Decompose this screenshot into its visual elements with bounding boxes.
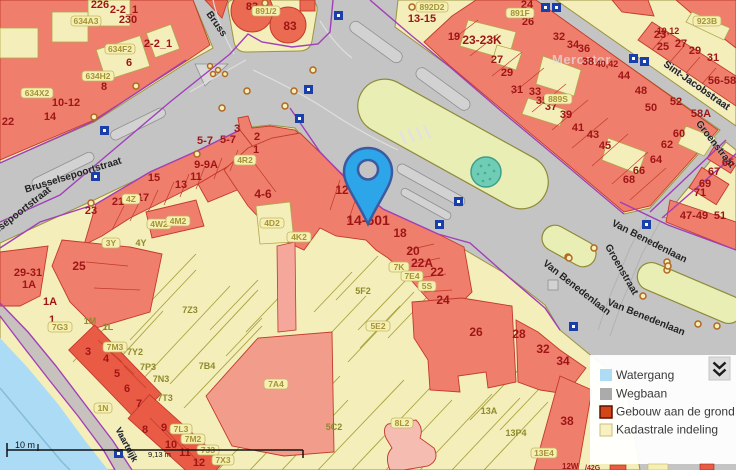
svg-text:7L3: 7L3 xyxy=(174,424,189,434)
svg-text:Watergang: Watergang xyxy=(616,368,674,382)
svg-text:892D2: 892D2 xyxy=(419,2,444,12)
svg-text:4K2: 4K2 xyxy=(291,232,307,242)
svg-text:4-6: 4-6 xyxy=(254,187,272,201)
svg-text:230: 230 xyxy=(119,14,137,26)
svg-text:7T3: 7T3 xyxy=(157,393,173,403)
svg-text:31: 31 xyxy=(511,84,523,96)
svg-text:14: 14 xyxy=(44,111,57,123)
svg-text:32: 32 xyxy=(536,342,550,356)
svg-text:8L2: 8L2 xyxy=(395,418,410,428)
svg-text:26: 26 xyxy=(469,325,483,339)
svg-text:47-49: 47-49 xyxy=(680,210,708,222)
svg-text:29: 29 xyxy=(501,67,513,79)
svg-text:6: 6 xyxy=(126,57,132,69)
svg-text:Kadastrale indeling: Kadastrale indeling xyxy=(616,423,718,437)
svg-text:29: 29 xyxy=(689,45,701,57)
svg-text:2: 2 xyxy=(254,131,260,143)
svg-text:43: 43 xyxy=(587,129,599,141)
svg-text:67: 67 xyxy=(708,166,720,178)
svg-text:65: 65 xyxy=(722,157,734,169)
svg-text:5C2: 5C2 xyxy=(326,422,343,432)
svg-text:83: 83 xyxy=(283,19,297,33)
svg-text:Wegbaan: Wegbaan xyxy=(616,387,667,401)
svg-text:891F: 891F xyxy=(510,8,529,18)
svg-text:38: 38 xyxy=(582,56,594,68)
svg-text:226: 226 xyxy=(91,0,109,11)
svg-text:1A: 1A xyxy=(22,279,36,291)
svg-text:7N3: 7N3 xyxy=(153,374,170,384)
svg-text:24: 24 xyxy=(436,293,450,307)
svg-text:60: 60 xyxy=(673,128,685,140)
svg-text:1N: 1N xyxy=(98,403,109,413)
svg-text:Gebouw aan de grond: Gebouw aan de grond xyxy=(616,405,735,419)
svg-text:68: 68 xyxy=(623,174,635,186)
svg-text:25: 25 xyxy=(657,41,669,53)
svg-text:44: 44 xyxy=(618,70,631,82)
svg-text:5: 5 xyxy=(114,368,120,380)
svg-text:52: 52 xyxy=(670,96,682,108)
svg-text:27: 27 xyxy=(675,38,687,50)
svg-text:23-23K: 23-23K xyxy=(462,33,502,47)
svg-text:19: 19 xyxy=(448,31,460,43)
svg-text:889S: 889S xyxy=(548,94,568,104)
svg-text:/42G: /42G xyxy=(585,465,601,470)
svg-text:1L: 1L xyxy=(103,322,114,332)
svg-text:29-31: 29-31 xyxy=(14,267,42,279)
svg-text:9-9A: 9-9A xyxy=(194,159,218,171)
svg-text:11: 11 xyxy=(179,447,191,459)
svg-text:7A4: 7A4 xyxy=(268,379,284,389)
svg-text:64: 64 xyxy=(650,154,663,166)
svg-text:10,12: 10,12 xyxy=(657,26,680,36)
svg-text:7X3: 7X3 xyxy=(215,455,230,465)
svg-text:4M2: 4M2 xyxy=(170,216,187,226)
svg-text:5S: 5S xyxy=(422,281,433,291)
svg-text:48: 48 xyxy=(635,85,647,97)
svg-text:7E4: 7E4 xyxy=(404,271,419,281)
svg-text:4D2: 4D2 xyxy=(264,218,280,228)
svg-text:634A3: 634A3 xyxy=(73,16,98,26)
svg-text:923B: 923B xyxy=(697,16,717,26)
svg-text:891/2: 891/2 xyxy=(255,6,277,16)
svg-text:13E4: 13E4 xyxy=(534,448,554,458)
svg-text:15: 15 xyxy=(148,172,160,184)
svg-text:7Y2: 7Y2 xyxy=(127,347,143,357)
svg-text:23: 23 xyxy=(85,205,97,217)
svg-text:4W2: 4W2 xyxy=(150,219,168,229)
svg-text:41: 41 xyxy=(572,122,584,134)
svg-text:34: 34 xyxy=(556,354,570,368)
svg-text:13-15: 13-15 xyxy=(408,13,436,25)
svg-text:32: 32 xyxy=(553,31,565,43)
svg-text:31: 31 xyxy=(707,52,719,64)
svg-text:1: 1 xyxy=(253,144,259,156)
svg-text:4Y: 4Y xyxy=(135,238,146,248)
svg-text:36: 36 xyxy=(578,43,590,55)
svg-text:39: 39 xyxy=(560,109,572,121)
svg-text:1M: 1M xyxy=(84,316,97,326)
svg-text:13: 13 xyxy=(175,179,187,191)
svg-text:13A: 13A xyxy=(481,406,498,416)
svg-text:12: 12 xyxy=(193,457,205,469)
svg-text:7: 7 xyxy=(136,398,142,410)
svg-text:22: 22 xyxy=(430,265,444,279)
svg-text:4: 4 xyxy=(103,353,110,365)
svg-text:7Z3: 7Z3 xyxy=(182,305,198,315)
svg-text:5-7: 5-7 xyxy=(220,134,236,146)
svg-text:5F2: 5F2 xyxy=(355,286,371,296)
svg-text:634X2: 634X2 xyxy=(25,88,50,98)
svg-text:634H2: 634H2 xyxy=(85,71,110,81)
svg-text:8: 8 xyxy=(101,81,107,93)
svg-text:50: 50 xyxy=(645,102,657,114)
svg-text:9: 9 xyxy=(161,422,167,434)
svg-text:2-2_1: 2-2_1 xyxy=(144,38,172,50)
svg-text:3: 3 xyxy=(85,346,91,358)
svg-text:13P4: 13P4 xyxy=(505,428,526,438)
svg-text:38: 38 xyxy=(560,414,574,428)
svg-text:11: 11 xyxy=(190,171,202,183)
svg-text:51: 51 xyxy=(714,210,726,222)
svg-text:25: 25 xyxy=(72,259,86,273)
svg-text:8: 8 xyxy=(142,424,148,436)
svg-text:62: 62 xyxy=(661,139,673,151)
svg-text:22: 22 xyxy=(2,116,14,128)
svg-text:4R2: 4R2 xyxy=(237,155,253,165)
svg-text:40,42: 40,42 xyxy=(596,59,619,69)
svg-text:9,13 m: 9,13 m xyxy=(148,450,171,459)
svg-text:10 m: 10 m xyxy=(15,440,35,450)
svg-text:6: 6 xyxy=(124,383,130,395)
svg-text:12W: 12W xyxy=(562,462,579,470)
svg-text:7B4: 7B4 xyxy=(199,361,216,371)
svg-text:28: 28 xyxy=(512,327,526,341)
svg-text:56-58: 56-58 xyxy=(708,75,736,87)
svg-text:5E2: 5E2 xyxy=(370,321,385,331)
svg-text:58A: 58A xyxy=(691,108,711,120)
svg-text:5-7: 5-7 xyxy=(197,135,213,147)
svg-text:18: 18 xyxy=(393,226,407,240)
svg-text:7P3: 7P3 xyxy=(140,362,156,372)
svg-text:10-12: 10-12 xyxy=(52,97,80,109)
svg-text:7G3: 7G3 xyxy=(52,322,68,332)
svg-text:1A: 1A xyxy=(43,296,57,308)
svg-text:4Z: 4Z xyxy=(126,194,136,204)
svg-text:71: 71 xyxy=(694,187,706,199)
svg-text:7M2: 7M2 xyxy=(185,434,202,444)
svg-text:7M3: 7M3 xyxy=(107,342,124,352)
svg-text:45: 45 xyxy=(599,140,611,152)
svg-text:27: 27 xyxy=(491,54,503,66)
svg-text:3Y: 3Y xyxy=(106,238,117,248)
svg-text:634F2: 634F2 xyxy=(108,44,132,54)
